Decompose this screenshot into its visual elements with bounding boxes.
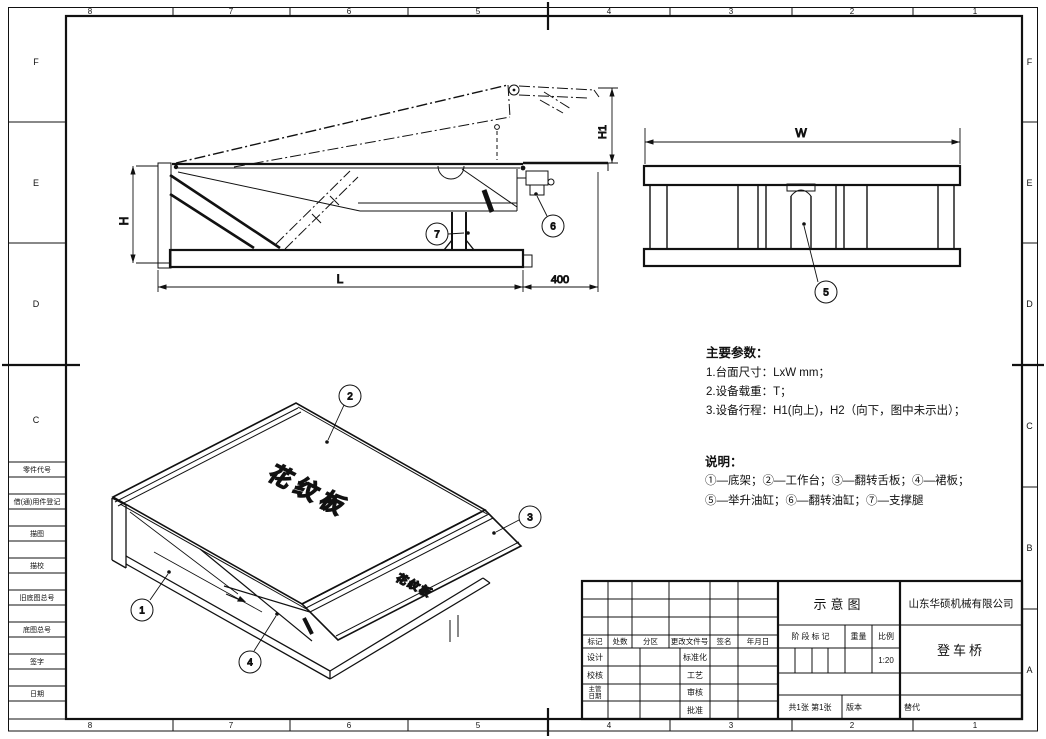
tb-header-mark: 标记 (582, 635, 608, 648)
tb-supervisor-date-label: 主管 日期 (582, 684, 608, 701)
zone-col-bot-5: 5 (468, 720, 488, 731)
legend-title: 说明： (705, 452, 743, 468)
balloon-6: 6 (534, 192, 564, 237)
zone-row-right-f: F (1022, 54, 1037, 70)
zone-col-top-7: 7 (221, 6, 241, 16)
tb-version-label: 版本 (846, 695, 900, 719)
legend-line-1: ①—底架；②—工作台；③—翻转舌板；④—裙板； (705, 472, 970, 488)
title-company: 山东华硕机械有限公司 (900, 581, 1022, 625)
margin-label-date: 日期 (8, 686, 66, 701)
zone-row-left-e: E (26, 175, 46, 191)
zone-row-right-e: E (1022, 175, 1037, 191)
svg-text:5: 5 (823, 288, 829, 299)
zone-row-right-a: A (1022, 662, 1037, 678)
dim-l: L 400 (158, 172, 598, 292)
tb-process-label: 工艺 (680, 666, 710, 684)
zone-row-left-c: C (26, 412, 46, 428)
tb-check-label: 校核 (582, 666, 608, 684)
tb-header-signature: 签名 (710, 635, 738, 648)
tb-sheet-info: 共1张 第1张 (778, 695, 842, 719)
dim-h-text: H (117, 217, 131, 226)
param-line-1: 1.台面尺寸：LxW mm； (706, 364, 830, 379)
tb-approve-label: 批准 (680, 701, 710, 719)
tb-supervisor-label: 主管 (589, 686, 602, 693)
tb-review-label: 审核 (680, 684, 710, 701)
zone-col-top-5: 5 (468, 6, 488, 16)
title-stage-label: 阶段标记 (778, 625, 845, 648)
dim-h1: H1 (597, 88, 618, 163)
balloon-2: 2 (325, 385, 361, 444)
zone-col-bot-3: 3 (721, 720, 741, 731)
margin-label-trace: 描图 (8, 526, 66, 541)
tb-replace-label: 替代 (904, 695, 1022, 719)
dim-w-text: W (795, 126, 807, 140)
zone-col-top-2: 2 (842, 6, 862, 16)
zone-col-top-4: 4 (599, 6, 619, 16)
margin-label-trace-check: 描校 (8, 558, 66, 573)
margin-label-borrow-reg: 借(通)用件登记 (8, 494, 66, 509)
dim-h1-text: H1 (597, 125, 609, 139)
balloon-4: 4 (239, 612, 279, 673)
dim-w: W (645, 126, 960, 164)
balloon-5: 5 (802, 222, 837, 303)
svg-text:3: 3 (527, 513, 533, 524)
margin-label-part-code: 零件代号 (8, 462, 66, 477)
zone-col-bot-4: 4 (599, 720, 619, 731)
zone-col-top-6: 6 (339, 6, 359, 16)
title-part-name: 登车桥 (900, 625, 1022, 673)
svg-text:7: 7 (434, 230, 440, 241)
margin-label-old-master: 旧底图总号 (8, 590, 66, 605)
dim-h: H (117, 166, 170, 263)
svg-text:1: 1 (139, 606, 145, 617)
param-line-2: 2.设备载重：T； (706, 383, 792, 398)
zone-col-bot-8: 8 (80, 720, 100, 731)
svg-text:4: 4 (247, 658, 253, 669)
svg-text:2: 2 (347, 392, 353, 403)
zone-row-right-c: C (1022, 418, 1037, 434)
drawing-sheet: H H1 L 400 (0, 0, 1046, 739)
zone-col-top-8: 8 (80, 6, 100, 16)
zone-col-bot-1: 1 (965, 720, 985, 731)
params-title: 主要参数： (706, 343, 769, 359)
balloon-3: 3 (492, 506, 541, 535)
zone-row-left-f: F (26, 54, 46, 70)
side-view: H H1 L 400 (117, 85, 618, 292)
title-scale-value: 1:20 (872, 648, 900, 673)
front-view: W 5 (644, 126, 960, 303)
tb-header-file-no: 更改文件号 (669, 635, 710, 648)
zone-col-bot-6: 6 (339, 720, 359, 731)
plate-label-top: 花纹板 (263, 461, 355, 522)
zone-col-bot-2: 2 (842, 720, 862, 731)
title-doc-type: 示意图 (778, 581, 900, 625)
zone-row-right-d: D (1022, 296, 1037, 312)
margin-label-master-no: 底图总号 (8, 622, 66, 637)
dim-400-text: 400 (551, 274, 569, 286)
dim-l-text: L (337, 272, 344, 286)
tb-header-date: 年月日 (738, 635, 778, 648)
svg-text:6: 6 (550, 222, 556, 233)
tb-header-zone: 分区 (632, 635, 669, 648)
zone-col-bot-7: 7 (221, 720, 241, 731)
tb-standardization-label: 标准化 (680, 648, 710, 666)
zone-col-top-3: 3 (721, 6, 741, 16)
zone-row-right-b: B (1022, 540, 1037, 556)
title-weight-label: 重量 (845, 625, 872, 648)
balloon-7: 7 (426, 223, 470, 245)
margin-label-signature: 签字 (8, 654, 66, 669)
param-line-3: 3.设备行程：H1(向上)，H2（向下，图中未示出）； (706, 402, 965, 417)
title-scale-label: 比例 (872, 625, 900, 648)
legend-line-2: ⑤—举升油缸；⑥—翻转油缸；⑦—支撑腿 (705, 492, 924, 508)
tb-header-count: 处数 (608, 635, 632, 648)
tb-design-label: 设计 (582, 648, 608, 666)
tb-date-label: 日期 (589, 693, 602, 700)
zone-row-left-d: D (26, 296, 46, 312)
zone-col-top-1: 1 (965, 6, 985, 16)
iso-view: 花纹板 花纹板 1 2 3 (112, 385, 541, 679)
